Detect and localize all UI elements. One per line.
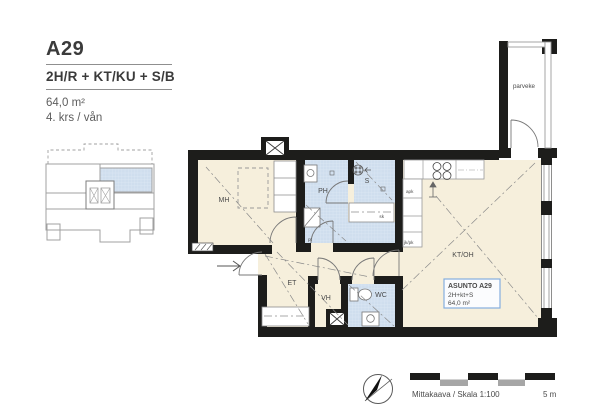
north-arrow-icon: [364, 375, 393, 404]
laundry-tower-icon: [304, 208, 320, 227]
wardrobe: [274, 161, 296, 212]
fixture-label-sk: sk: [379, 214, 384, 219]
entry-arrow-icon: [217, 261, 240, 271]
info-box-title: ASUNTO A29: [448, 283, 492, 290]
balcony-floor: [508, 46, 542, 148]
scale-bar: [410, 373, 555, 386]
room-label-ph: PH: [318, 188, 328, 195]
minimap-roof-outline: [48, 144, 152, 164]
room-label-mh: MH: [219, 197, 230, 204]
info-box-area: 64,0 m²: [448, 300, 471, 307]
floorplan-page: A29 2H/R + KT/KU + S/B 64,0 m² 4. krs / …: [0, 0, 600, 415]
floor-plan-svg: MH PH S KT/OH ET VH WC parveke pt sk apk…: [0, 0, 600, 415]
fixture-label-jkpk: jk/pk: [403, 240, 414, 245]
room-label-sauna: S: [365, 178, 370, 185]
wc-basin-icon: [362, 312, 379, 326]
window: [542, 165, 552, 308]
room-label-parveke: parveke: [513, 83, 536, 90]
room-label-wc: WC: [375, 292, 387, 299]
room-utility-floor: [348, 222, 395, 243]
entry-wardrobe: [262, 307, 309, 326]
room-label-et: ET: [288, 280, 298, 287]
fixture-label-apk: apk: [406, 189, 414, 194]
info-box: ASUNTO A29 2H+kt+S 64,0 m²: [444, 279, 500, 308]
shaft-x-icon: [261, 137, 289, 159]
vent-grille: [192, 243, 213, 251]
sauna-bench: [349, 203, 394, 222]
overview-minimap: [46, 144, 154, 242]
shaft-x-icon: [326, 309, 348, 329]
washbasin-icon: [304, 165, 317, 182]
room-label-ktoh: KT/OH: [452, 252, 473, 259]
apartment-plan: MH PH S KT/OH ET VH WC parveke pt sk apk…: [188, 39, 557, 337]
room-label-vh: VH: [321, 295, 331, 302]
info-box-type: 2H+kt+S: [448, 292, 474, 299]
toilet-icon: [350, 288, 372, 301]
scale-max-label: 5 m: [543, 390, 557, 399]
scale-label: Mittakaava / Skala 1:100: [412, 390, 500, 399]
